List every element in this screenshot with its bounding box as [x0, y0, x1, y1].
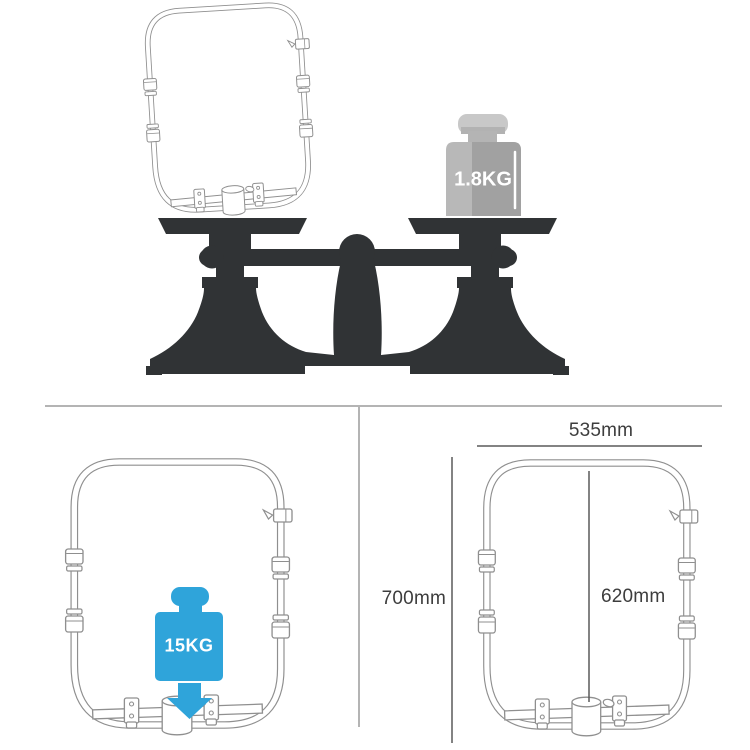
- dimension-label-inner-height: 620mm: [601, 586, 665, 608]
- weight-15kg-icon: [155, 587, 223, 681]
- dimension-label-height: 700mm: [382, 588, 446, 610]
- infographic-canvas: [0, 0, 750, 750]
- balance-scale-silhouette: [146, 218, 569, 375]
- dimension-label-width: 535mm: [569, 420, 633, 442]
- weight-label-1point8kg: 1.8KG: [454, 169, 512, 192]
- product-infographic: 1.8KG 15KG 535mm 700mm 620mm: [0, 0, 750, 750]
- rail-frame-on-scale: [139, 3, 319, 220]
- weight-label-15kg: 15KG: [164, 636, 213, 657]
- weight-1point8kg-icon: [446, 114, 521, 216]
